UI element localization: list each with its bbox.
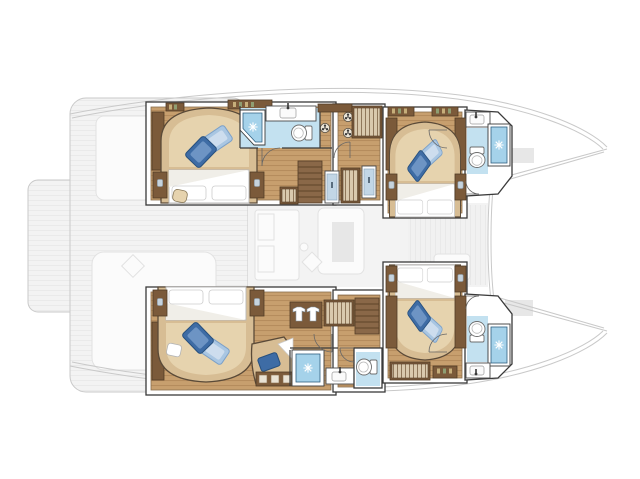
shelf-item (398, 109, 401, 114)
shower-head-icon (248, 122, 257, 131)
hanging-clothes (354, 108, 380, 136)
hanging-clothes (282, 189, 296, 202)
deck-hatch-icon (343, 128, 352, 137)
mirror-figure (331, 182, 333, 188)
shelf-item (251, 102, 254, 107)
shower-head-icon (494, 140, 503, 149)
double-bed (158, 287, 254, 382)
shower-head-icon (303, 363, 312, 372)
saloon-table (332, 222, 354, 262)
shelf-item (448, 109, 451, 114)
toilet (469, 147, 485, 168)
washbasin (332, 372, 346, 381)
hanging-clothes (343, 170, 358, 201)
lamp-icon (389, 275, 394, 282)
lamp-icon (458, 182, 463, 189)
lamp-icon (157, 180, 162, 187)
shelf-item (174, 105, 177, 110)
stairs-to-saloon (298, 161, 322, 203)
shelf-item (436, 109, 439, 114)
vanity-stool (166, 343, 182, 358)
washbasin (280, 108, 296, 118)
toilet (357, 359, 378, 375)
stairs-to-saloon (355, 298, 379, 334)
shelf (318, 104, 352, 112)
shelf-item (233, 102, 236, 107)
shelf-item (245, 102, 248, 107)
toilet (292, 125, 313, 141)
galley-counter (258, 246, 274, 272)
shelf-item (169, 105, 172, 110)
drawer (259, 375, 267, 383)
deck-hatch-icon (320, 123, 329, 132)
floor-plan-svg (0, 0, 640, 479)
hull-top (146, 100, 512, 218)
drawer (271, 375, 279, 383)
shelf-item (392, 109, 395, 114)
shelf-item (449, 369, 452, 374)
lamp-icon (254, 299, 259, 306)
wardrobe-with-shirts (290, 302, 322, 328)
shelf-item (442, 109, 445, 114)
saloon-stool (300, 243, 308, 251)
hanging-clothes (326, 302, 352, 324)
toilet (469, 322, 485, 343)
lamp-icon (254, 180, 259, 187)
wardrobe (386, 296, 397, 348)
deck-hatch-icon (343, 112, 352, 121)
mirror-figure (368, 177, 370, 183)
shelf-item (437, 369, 440, 374)
shelf-item (404, 109, 407, 114)
shower-head-icon (494, 340, 503, 349)
lamp-icon (458, 275, 463, 282)
double-bed (389, 122, 460, 217)
cockpit-sunpad (96, 116, 152, 200)
lamp-icon (389, 182, 394, 189)
galley-counter (258, 214, 274, 240)
double-bed (389, 265, 460, 360)
lamp-icon (157, 299, 162, 306)
shelf-item (443, 369, 446, 374)
hanging-clothes (392, 364, 428, 378)
wardrobe (455, 296, 466, 348)
